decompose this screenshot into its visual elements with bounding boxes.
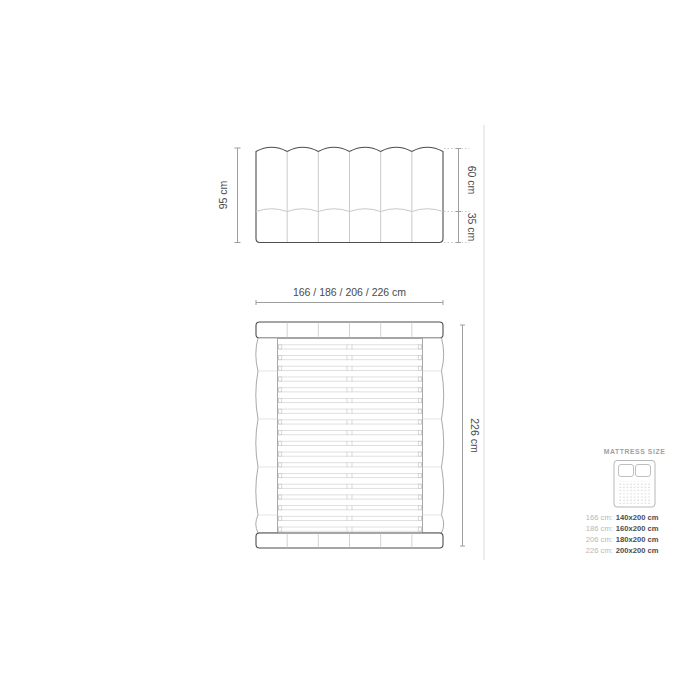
legend-row-label: 206 cm: [586, 535, 613, 544]
legend-row-value: 180x200 cm [616, 535, 659, 544]
slat [279, 355, 422, 360]
front-height-label: 95 cm [217, 180, 229, 209]
plan-width-dimension: 166 / 186 / 206 / 226 cm [256, 286, 443, 305]
product-dimension-image: 95 cm 60 cm 35 cm 166 / 186 / 206 / 226 … [0, 0, 700, 700]
mattress-dots-texture [619, 482, 652, 505]
slat [279, 516, 422, 521]
legend-row-value: 140x200 cm [616, 513, 659, 522]
extension-dotted-lines [444, 149, 470, 243]
front-lower-section-label: 35 cm [466, 213, 478, 242]
plan-view: 166 / 186 / 206 / 226 cm [256, 286, 481, 548]
legend-row-label: 226 cm: [586, 546, 613, 555]
plan-right-rail [423, 338, 444, 533]
front-section-dimensions: 60 cm 35 cm [444, 149, 478, 243]
slat [279, 484, 422, 489]
legend-row-label: 166 cm: [586, 513, 613, 522]
plan-width-label: 166 / 186 / 206 / 226 cm [293, 286, 406, 298]
front-height-dimension: 95 cm [217, 148, 241, 243]
front-upper-section-label: 60 cm [466, 166, 478, 195]
slat [279, 409, 422, 414]
slat [279, 452, 422, 457]
legend-row-label: 186 cm: [586, 524, 613, 533]
slat [279, 473, 422, 478]
mattress-icon [614, 461, 655, 508]
legend-row: 166 cm:140x200 cm [586, 513, 659, 522]
slat [279, 462, 422, 467]
slat [279, 505, 422, 510]
slat [279, 527, 422, 532]
slat [279, 430, 422, 435]
front-view: 95 cm 60 cm 35 cm [217, 147, 478, 242]
slat [279, 398, 422, 403]
legend-row: 186 cm:160x200 cm [586, 524, 659, 533]
slat [279, 494, 422, 499]
slats [279, 344, 422, 531]
legend-row: 206 cm:180x200 cm [586, 535, 659, 544]
plan-left-rail [256, 338, 278, 533]
legend-title: MATTRESS SIZE [604, 448, 666, 455]
legend-row: 226 cm:200x200 cm [586, 546, 659, 555]
slat [279, 419, 422, 424]
slat [279, 376, 422, 381]
plan-length-label: 226 cm [469, 418, 481, 453]
mattress-size-legend: MATTRESS SIZE 166 cm:140x200 cm 186 cm:1… [586, 448, 666, 555]
plan-length-dimension: 226 cm [460, 325, 481, 546]
legend-rows: 166 cm:140x200 cm 186 cm:160x200 cm 206 … [586, 513, 659, 555]
slat [279, 387, 422, 392]
slat [279, 366, 422, 371]
slat [279, 344, 422, 349]
legend-row-value: 200x200 cm [616, 546, 659, 555]
dimension-diagram: 95 cm 60 cm 35 cm 166 / 186 / 206 / 226 … [0, 0, 700, 700]
slat [279, 441, 422, 446]
pillow-right-icon [636, 465, 651, 477]
legend-row-value: 160x200 cm [616, 524, 659, 533]
pillow-left-icon [619, 465, 634, 477]
